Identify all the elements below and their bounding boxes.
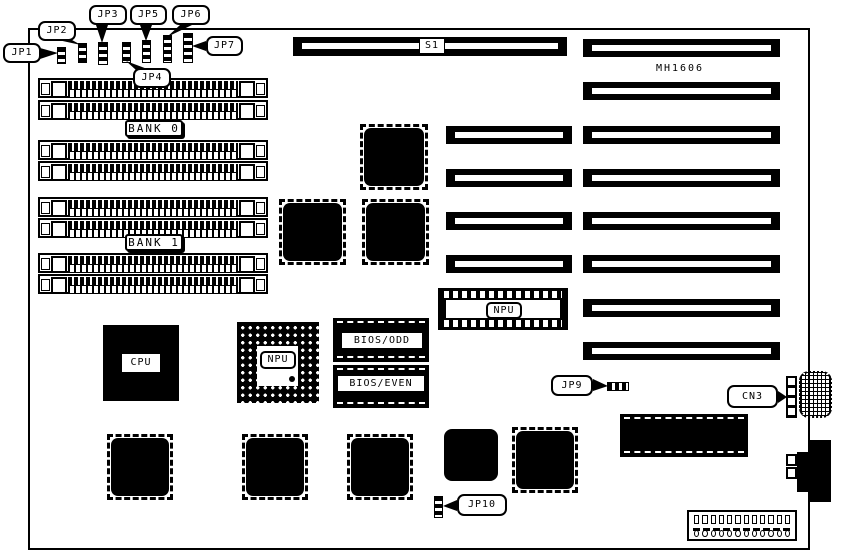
isa-slot-long-6: [583, 255, 780, 273]
terminal-pin: [727, 530, 732, 537]
simm-clip: [41, 202, 50, 214]
terminal-cell: [735, 515, 740, 524]
jumper-jp10: [434, 496, 443, 518]
terminal-cell: [694, 515, 699, 524]
callout-jp7: JP7: [206, 36, 243, 56]
isa-slot-long-8: [583, 342, 780, 360]
isa-slot-long-4: [583, 169, 780, 187]
board-model-label: MH1606: [638, 62, 722, 76]
simm-clip: [256, 279, 265, 291]
chip-pin-line: [337, 356, 425, 358]
simm-socket-5: [38, 197, 268, 217]
simm-clip: [51, 277, 67, 294]
qfp-chip-6: [347, 434, 413, 500]
simm-contacts: [68, 200, 238, 208]
jp5-label: JP5: [138, 10, 159, 20]
terminal-pin: [785, 530, 790, 537]
simm-contacts: [68, 111, 238, 119]
simm-contacts: [68, 143, 238, 151]
slot-stripe: [592, 305, 771, 311]
simm-clip: [51, 164, 67, 181]
qfp-chip-4: [107, 434, 173, 500]
slot-stripe: [592, 45, 771, 51]
slot-stripe: [455, 175, 563, 181]
terminal-pin: [768, 530, 773, 537]
slot-stripe: [592, 175, 771, 181]
simm-clip: [256, 83, 265, 95]
jp2-label: JP2: [46, 26, 67, 36]
jumper-jp6: [163, 35, 172, 63]
simm-clip: [256, 258, 265, 270]
terminal-cell: [711, 515, 716, 524]
chip-body: [111, 438, 169, 496]
cn3-connector: [786, 376, 797, 418]
simm-contacts: [68, 151, 238, 159]
simm-clip: [239, 103, 255, 120]
simm-clip: [41, 145, 50, 157]
jp6-label: JP6: [180, 10, 201, 20]
simm-clip: [51, 256, 67, 273]
isa-slot-long-7: [583, 299, 780, 317]
simm-clip: [51, 221, 67, 238]
slot-stripe: [592, 132, 771, 138]
callout-jp5: JP5: [130, 5, 167, 25]
chip-body: [366, 203, 425, 261]
isa-slot-short-3: [446, 212, 572, 230]
simm-contacts: [68, 221, 238, 229]
simm-clip: [41, 105, 50, 117]
pga-pin1-dot: [289, 376, 295, 382]
chip-body: [246, 438, 304, 496]
qfp-chip-1: [360, 124, 428, 190]
slot-stripe: [592, 261, 771, 267]
simm-contacts: [68, 256, 238, 264]
simm-clip: [239, 277, 255, 294]
chip-pin-line: [337, 402, 425, 404]
terminal-cell: [702, 515, 707, 524]
chip-pin-line: [337, 368, 425, 370]
simm-clip: [239, 256, 255, 273]
simm-clip: [256, 145, 265, 157]
terminal-pin: [735, 530, 740, 537]
slot-stripe: [455, 218, 563, 224]
s1-label: S1: [425, 41, 439, 51]
simm-clip: [239, 81, 255, 98]
slot-stripe: [455, 261, 563, 267]
terminal-pin: [719, 530, 724, 537]
jp7-label: JP7: [214, 41, 235, 51]
isa-slot-short-1: [446, 126, 572, 144]
cpu-label-box: CPU: [122, 354, 160, 372]
qfp-chip-3: [362, 199, 429, 265]
terminal-pin: [702, 530, 707, 537]
bank1-label-box: BANK 1: [125, 234, 183, 251]
simm-clip: [41, 223, 50, 235]
bank0-label-box: BANK 0: [125, 120, 183, 137]
terminal-pin: [752, 530, 757, 537]
simm-contacts: [68, 172, 238, 180]
terminal-cell: [768, 515, 773, 524]
jp4-label: JP4: [141, 73, 162, 83]
power-connector-clip: [786, 454, 797, 466]
simm-clip: [239, 143, 255, 160]
terminal-cell: [752, 515, 757, 524]
simm-clip: [239, 200, 255, 217]
simm-clip: [239, 221, 255, 238]
simm-clip: [41, 83, 50, 95]
dip-pin-row: [444, 291, 562, 298]
simm-socket-7: [38, 253, 268, 273]
simm-clip: [51, 200, 67, 217]
simm-contacts: [68, 208, 238, 216]
npu-pga-label: NPU: [267, 355, 288, 365]
simm-clip: [41, 258, 50, 270]
callout-jp6: JP6: [172, 5, 210, 25]
isa-slot-long-3: [583, 126, 780, 144]
npu-dip-label-box: NPU: [486, 302, 522, 319]
simm-clip: [256, 223, 265, 235]
cn3-label: CN3: [742, 392, 763, 402]
cpu-label: CPU: [130, 358, 151, 368]
jumper-jp2: [78, 43, 87, 63]
bank0-label: BANK 0: [128, 123, 180, 134]
callout-jp4: JP4: [133, 68, 171, 88]
chip-pin-line: [624, 417, 744, 419]
chip-pin-line: [337, 321, 425, 323]
terminal-cell: [727, 515, 732, 524]
isa-slot-long-2: [583, 82, 780, 100]
jumper-jp3: [98, 42, 108, 65]
simm-contacts: [68, 264, 238, 272]
isa-slot-long-5: [583, 212, 780, 230]
qfp-chip-7: [512, 427, 578, 493]
terminal-cells: [694, 515, 790, 524]
jumper-jp7: [183, 33, 193, 63]
isa-slot-short-2: [446, 169, 572, 187]
simm-clip: [256, 202, 265, 214]
dip-pin-row: [444, 320, 562, 327]
simm-socket-8: [38, 274, 268, 294]
simm-clip: [41, 166, 50, 178]
terminal-pin: [694, 530, 699, 537]
callout-cn3: CN3: [727, 385, 778, 408]
terminal-cell: [785, 515, 790, 524]
simm-socket-4: [38, 161, 268, 181]
npu-dip-label: NPU: [493, 306, 514, 316]
terminal-cell: [744, 515, 749, 524]
chip-pin-line: [624, 451, 744, 453]
terminal-cell: [777, 515, 782, 524]
simm-contacts: [68, 285, 238, 293]
bank1-label: BANK 1: [128, 237, 180, 248]
isa-slot-short-4: [446, 255, 572, 273]
chip-body: [364, 128, 424, 186]
keyboard-connector: [799, 371, 832, 418]
terminal-pin: [777, 530, 782, 537]
terminal-cell: [719, 515, 724, 524]
isa-slot-long-1: [583, 39, 780, 57]
terminal-cell: [760, 515, 765, 524]
s1-label-box: S1: [419, 38, 445, 54]
power-connector-clip: [786, 467, 797, 479]
simm-clip: [41, 279, 50, 291]
callout-jp3: JP3: [89, 5, 127, 25]
simm-clip: [51, 143, 67, 160]
callout-jp2: JP2: [38, 21, 76, 41]
slot-stripe: [592, 348, 771, 354]
jumper-jp9: [607, 382, 629, 391]
bios-odd-label-box: BIOS/ODD: [340, 331, 424, 350]
plcc-chip: [444, 429, 498, 481]
simm-clip: [256, 105, 265, 117]
callout-jp1: JP1: [3, 43, 41, 63]
callout-jp9: JP9: [551, 375, 593, 396]
slot-stripe: [592, 218, 771, 224]
qfp-chip-5: [242, 434, 308, 500]
callout-jp10: JP10: [457, 494, 507, 516]
simm-clip: [256, 166, 265, 178]
simm-socket-2: [38, 100, 268, 120]
npu-pga-label-box: NPU: [260, 351, 296, 369]
terminal-pin: [760, 530, 765, 537]
power-connector-body: [810, 440, 831, 502]
jumper-jp5: [142, 40, 151, 63]
terminal-pins: [694, 530, 790, 537]
jumper-jp4: [122, 42, 131, 63]
jumper-jp1: [57, 47, 66, 64]
bios-even-label-box: BIOS/EVEN: [336, 374, 426, 393]
simm-clip: [51, 103, 67, 120]
motherboard-diagram: JP1 JP2 JP3 JP4 JP5 JP6 JP7 JP9 JP10 CN3…: [0, 0, 842, 558]
simm-socket-3: [38, 140, 268, 160]
chip-body: [516, 431, 574, 489]
bios-even-label: BIOS/EVEN: [349, 379, 412, 389]
simm-contacts: [68, 89, 238, 97]
simm-contacts: [68, 164, 238, 172]
bios-odd-label: BIOS/ODD: [354, 336, 410, 346]
chip-body: [283, 203, 342, 261]
simm-clip: [239, 164, 255, 181]
dip-chip-large: [620, 414, 748, 457]
chip-body: [351, 438, 409, 496]
slot-stripe: [592, 88, 771, 94]
jp9-label: JP9: [561, 381, 582, 391]
simm-contacts: [68, 103, 238, 111]
jp10-label: JP10: [468, 500, 496, 510]
jp1-label: JP1: [11, 48, 32, 58]
terminal-pin: [744, 530, 749, 537]
terminal-pin: [711, 530, 716, 537]
slot-stripe: [455, 132, 563, 138]
qfp-chip-2: [279, 199, 346, 265]
jp3-label: JP3: [97, 10, 118, 20]
terminal-connector: [687, 510, 797, 541]
simm-clip: [51, 81, 67, 98]
simm-contacts: [68, 277, 238, 285]
